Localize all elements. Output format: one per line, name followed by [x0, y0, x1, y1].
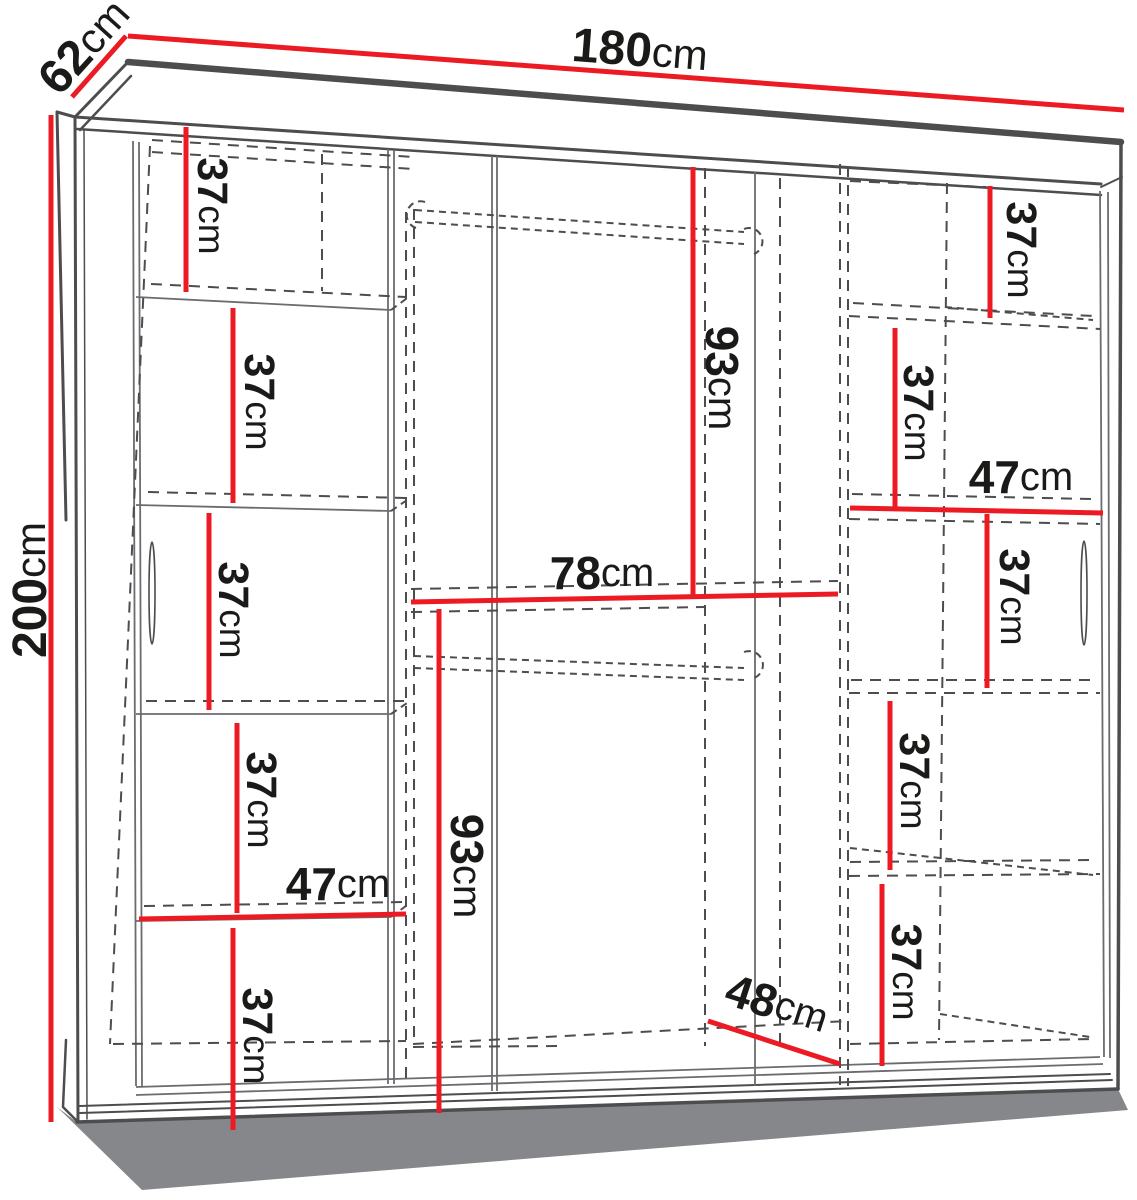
- label-middle-upper: 93cm: [696, 326, 748, 431]
- label-total-depth: 62cm: [28, 0, 141, 104]
- label-total-height: 200cm: [4, 522, 57, 658]
- label-left-gap-2: 37cm: [235, 353, 283, 450]
- label-left-gap-3: 37cm: [209, 561, 257, 658]
- cabinet-interior-solid: [133, 141, 1110, 1095]
- label-left-width: 47cm: [286, 858, 391, 910]
- label-middle-shelf-width: 78cm: [550, 547, 655, 599]
- label-right-width: 47cm: [969, 451, 1074, 503]
- label-right-gap-2: 37cm: [894, 364, 942, 461]
- wardrobe-dimension-diagram: 180cm 62cm 200cm 37cm 37cm 37cm 37cm 47c…: [0, 0, 1137, 1200]
- left-door-handle: [149, 542, 155, 644]
- right-door-handle: [1081, 541, 1087, 645]
- label-right-gap-4: 37cm: [890, 732, 938, 829]
- label-right-gap-5: 37cm: [882, 923, 930, 1020]
- label-right-gap-1: 37cm: [997, 201, 1045, 298]
- label-right-gap-3: 37cm: [990, 548, 1038, 645]
- label-middle-lower: 93cm: [441, 814, 493, 919]
- dim-line-right-width: [850, 508, 1103, 513]
- label-total-width: 180cm: [570, 18, 710, 81]
- dim-line-middle-shelf-width: [411, 594, 838, 602]
- label-left-gap-1: 37cm: [188, 157, 236, 254]
- dimension-labels: 180cm 62cm 200cm 37cm 37cm 37cm 37cm 47c…: [4, 0, 1074, 1085]
- label-left-gap-5: 37cm: [233, 987, 281, 1084]
- label-left-gap-4: 37cm: [237, 751, 285, 848]
- cabinet-interior-dashed: [110, 140, 1100, 1086]
